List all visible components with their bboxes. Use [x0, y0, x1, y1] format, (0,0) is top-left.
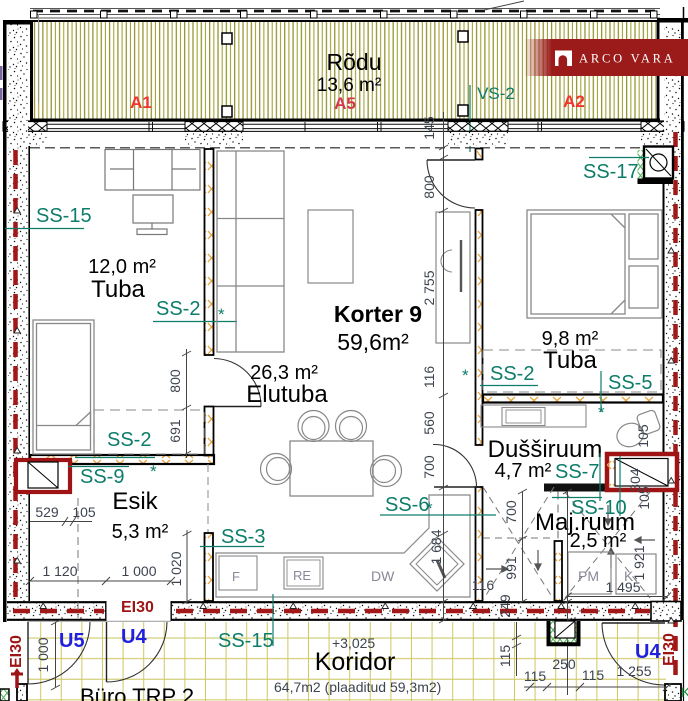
- svg-text:SS-2: SS-2: [490, 363, 534, 385]
- svg-text:EI30: EI30: [8, 635, 25, 668]
- svg-text:991: 991: [503, 556, 519, 580]
- svg-text:800: 800: [421, 175, 437, 199]
- svg-text:A2: A2: [563, 92, 585, 111]
- svg-text:5,3 m²: 5,3 m²: [112, 521, 169, 543]
- svg-text:Koridor: Koridor: [315, 648, 396, 676]
- svg-text:4,7 m²: 4,7 m²: [495, 460, 552, 482]
- svg-text:SS-7: SS-7: [555, 461, 599, 483]
- svg-text:ARCO VARA: ARCO VARA: [579, 52, 676, 66]
- svg-text:249: 249: [497, 594, 513, 618]
- svg-text:691: 691: [167, 419, 183, 443]
- svg-text:RE: RE: [293, 568, 311, 583]
- svg-text:F: F: [232, 569, 240, 584]
- svg-text:1 255: 1 255: [616, 663, 651, 679]
- svg-text:Tuba: Tuba: [91, 276, 145, 303]
- svg-text:1 000: 1 000: [121, 563, 156, 579]
- svg-text:EI30: EI30: [121, 599, 154, 616]
- svg-text:SS-2: SS-2: [156, 298, 200, 320]
- svg-text:PM: PM: [578, 568, 599, 584]
- svg-text:*: *: [218, 305, 225, 324]
- svg-text:SS-15: SS-15: [218, 630, 274, 652]
- svg-text:12,0 m²: 12,0 m²: [88, 256, 156, 278]
- svg-text:*: *: [462, 366, 469, 385]
- svg-text:115: 115: [497, 645, 513, 668]
- svg-text:EI30: EI30: [661, 633, 678, 666]
- svg-text:Esik: Esik: [112, 488, 158, 515]
- svg-text:1 000: 1 000: [35, 637, 51, 672]
- svg-text:13,6 m²: 13,6 m²: [317, 75, 381, 96]
- svg-text:105: 105: [635, 424, 651, 448]
- svg-text:Korter 9: Korter 9: [334, 301, 422, 327]
- svg-text:SS-2: SS-2: [107, 429, 151, 451]
- svg-text:64,7m2 (plaaditud 59,3m2): 64,7m2 (plaaditud 59,3m2): [274, 679, 441, 695]
- svg-text:116: 116: [472, 577, 495, 593]
- svg-text:*: *: [598, 403, 605, 422]
- svg-text:SS-10: SS-10: [571, 497, 627, 519]
- svg-text:A1: A1: [130, 93, 152, 112]
- svg-text:529: 529: [35, 504, 59, 520]
- svg-text:U4: U4: [121, 626, 147, 648]
- svg-text:700: 700: [421, 455, 437, 479]
- svg-text:59,6m²: 59,6m²: [337, 329, 409, 355]
- svg-text:SS-15: SS-15: [36, 205, 92, 227]
- svg-text:2 755: 2 755: [421, 270, 437, 305]
- svg-text:*: *: [150, 462, 157, 481]
- svg-text:Tuba: Tuba: [543, 347, 597, 374]
- svg-text:SS-5: SS-5: [608, 372, 652, 394]
- svg-text:U4: U4: [635, 641, 661, 663]
- svg-text:VS-2: VS-2: [477, 84, 515, 103]
- svg-text:145: 145: [421, 116, 437, 140]
- svg-text:115: 115: [582, 667, 605, 683]
- svg-text:SS-9: SS-9: [80, 466, 124, 488]
- svg-text:Dušširuum: Dušširuum: [488, 436, 603, 463]
- svg-text:115: 115: [524, 668, 547, 684]
- svg-text:SS-17: SS-17: [583, 161, 639, 183]
- svg-text:SS-6: SS-6: [385, 494, 429, 516]
- svg-text:*: *: [426, 499, 433, 518]
- svg-text:1 921: 1 921: [631, 545, 647, 580]
- svg-text:Büro TRP 2: Büro TRP 2: [80, 684, 194, 701]
- svg-text:Elutuba: Elutuba: [246, 381, 328, 408]
- svg-text:560: 560: [421, 411, 437, 435]
- svg-text:250: 250: [552, 656, 576, 672]
- svg-text:304: 304: [627, 468, 643, 492]
- svg-text:A5: A5: [334, 94, 356, 113]
- svg-text:105: 105: [72, 504, 96, 520]
- svg-text:800: 800: [167, 369, 183, 393]
- svg-text:700: 700: [503, 500, 519, 524]
- svg-text:1 684: 1 684: [428, 529, 444, 564]
- svg-text:1 120: 1 120: [42, 563, 77, 579]
- svg-text:2,5 m²: 2,5 m²: [570, 530, 627, 552]
- svg-text:K: K: [681, 684, 688, 700]
- svg-text:DW: DW: [371, 568, 395, 584]
- svg-text:SS-3: SS-3: [221, 526, 265, 548]
- svg-text:116: 116: [421, 366, 437, 389]
- svg-text:1 495: 1 495: [605, 579, 640, 595]
- svg-text:U5: U5: [59, 630, 85, 652]
- svg-text:Rõdu: Rõdu: [327, 49, 382, 75]
